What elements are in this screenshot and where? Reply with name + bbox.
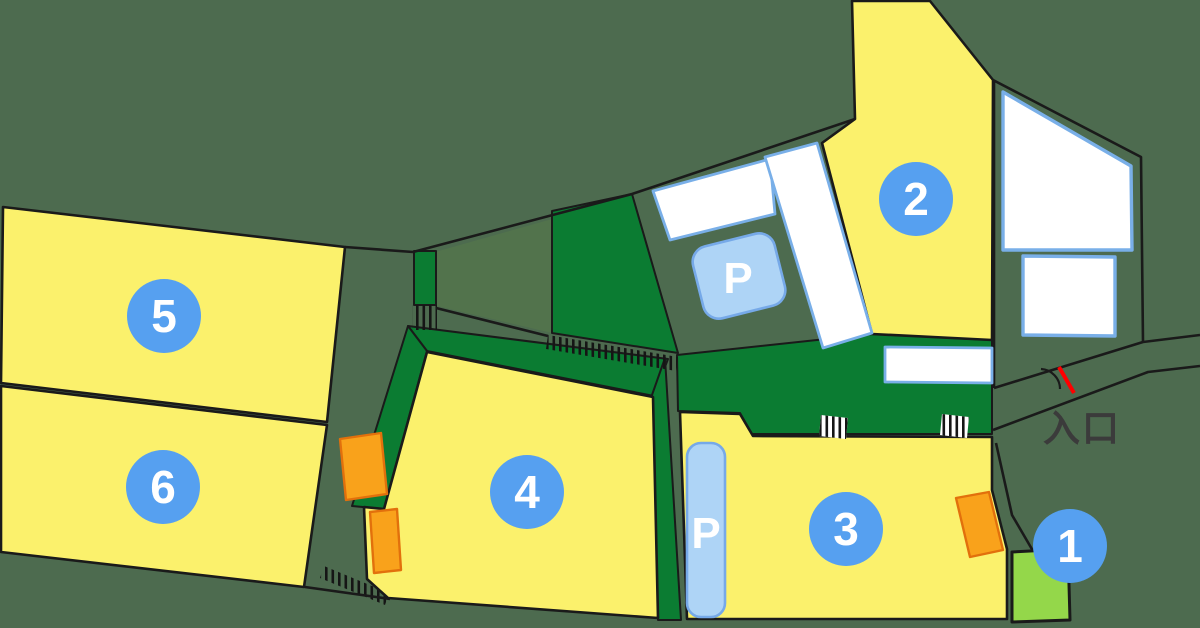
crossing-strip-right-hatch [940, 414, 969, 438]
building-white-east-lower [1023, 256, 1115, 336]
crossing-strip-left-hatch [819, 415, 848, 439]
parking-sign-upper-label: P [723, 254, 752, 303]
badge-area-3-number: 3 [833, 503, 859, 555]
badge-area-2-number: 2 [903, 173, 929, 225]
entrance-label: 入口 [1043, 408, 1121, 449]
orange-structure-west-lower [370, 509, 401, 573]
badge-area-6-number: 6 [150, 461, 176, 513]
orange-structure-west-upper [340, 433, 387, 500]
parking-sign-lower-label: P [691, 509, 720, 558]
site-map-page: P P 入口 5 6 4 3 2 1 [0, 0, 1200, 628]
badge-area-4-number: 4 [514, 466, 540, 518]
badge-area-1-number: 1 [1057, 520, 1083, 572]
hedge-corridor-band [414, 251, 436, 305]
badge-area-5-number: 5 [151, 290, 177, 342]
site-map-canvas: P P 入口 5 6 4 3 2 1 [0, 0, 1200, 628]
parking-stall-below-area2 [885, 347, 992, 383]
stairs-hatch-corridor [412, 305, 437, 330]
